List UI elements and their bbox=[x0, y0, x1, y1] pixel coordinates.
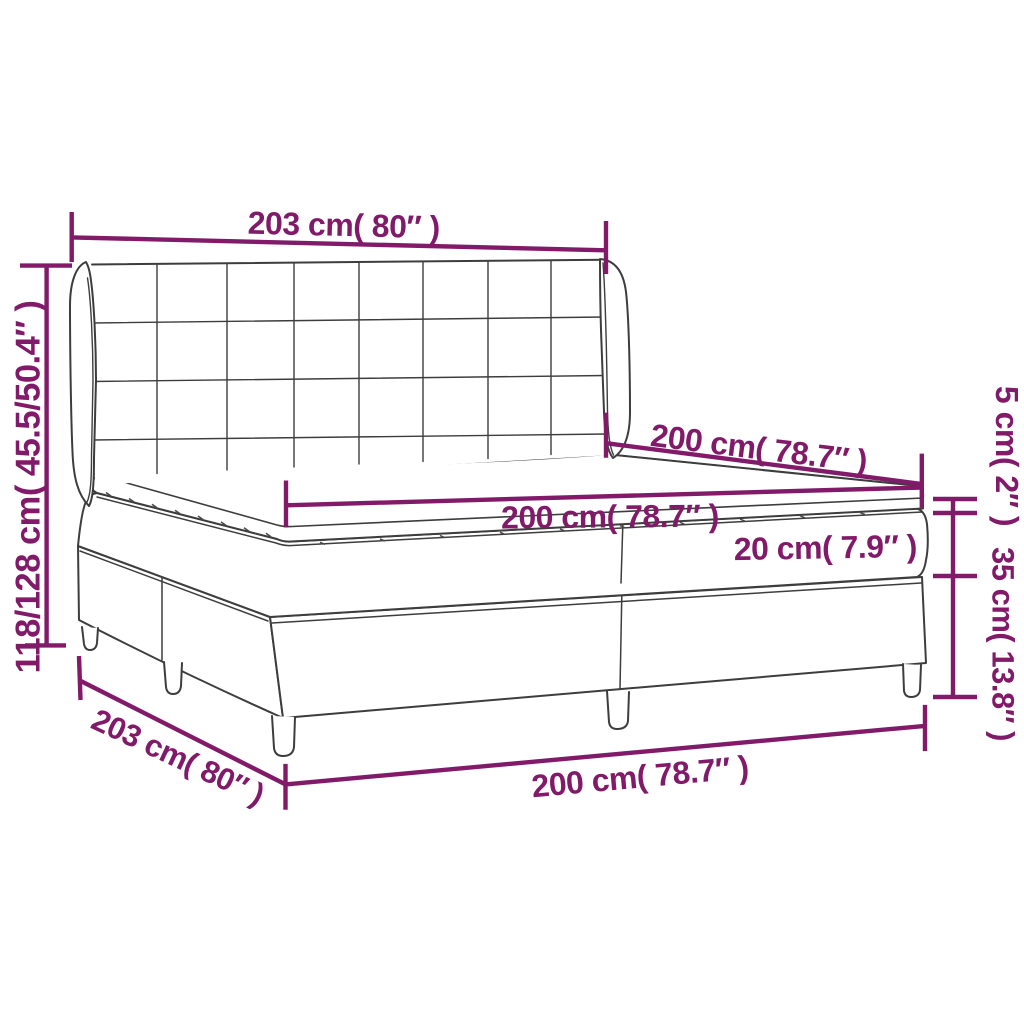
svg-text:35 cm( 13.8″ ): 35 cm( 13.8″ ) bbox=[986, 547, 1021, 741]
svg-text:200 cm( 78.7″ ): 200 cm( 78.7″ ) bbox=[501, 498, 719, 536]
svg-text:118/128 cm( 45.5/50.4″ ): 118/128 cm( 45.5/50.4″ ) bbox=[10, 301, 48, 674]
svg-text:5 cm( 2″ ): 5 cm( 2″ ) bbox=[989, 386, 1024, 526]
svg-text:20 cm( 7.9″ ): 20 cm( 7.9″ ) bbox=[733, 528, 917, 567]
svg-text:203 cm( 80″ ): 203 cm( 80″ ) bbox=[247, 205, 440, 246]
